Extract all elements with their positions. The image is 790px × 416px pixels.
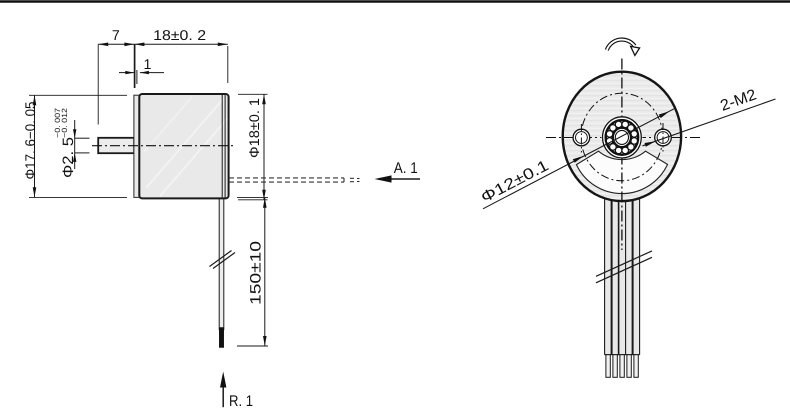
svg-text:18±0. 2: 18±0. 2 [153,28,206,44]
svg-text:Φ18±0. 1: Φ18±0. 1 [246,98,262,158]
svg-text:Φ17. 6−0. 05: Φ17. 6−0. 05 [22,101,38,179]
svg-text:Φ2. 5: Φ2. 5 [60,137,77,178]
svg-text:−0. 012: −0. 012 [60,108,69,138]
svg-text:A. 1: A. 1 [394,160,418,177]
svg-text:R. 1: R. 1 [229,393,253,410]
svg-text:1: 1 [144,57,152,73]
svg-text:Φ12±0.1: Φ12±0.1 [478,157,551,206]
svg-text:2-M2: 2-M2 [718,86,759,114]
svg-text:7: 7 [112,28,120,44]
svg-text:150±10: 150±10 [248,241,265,305]
